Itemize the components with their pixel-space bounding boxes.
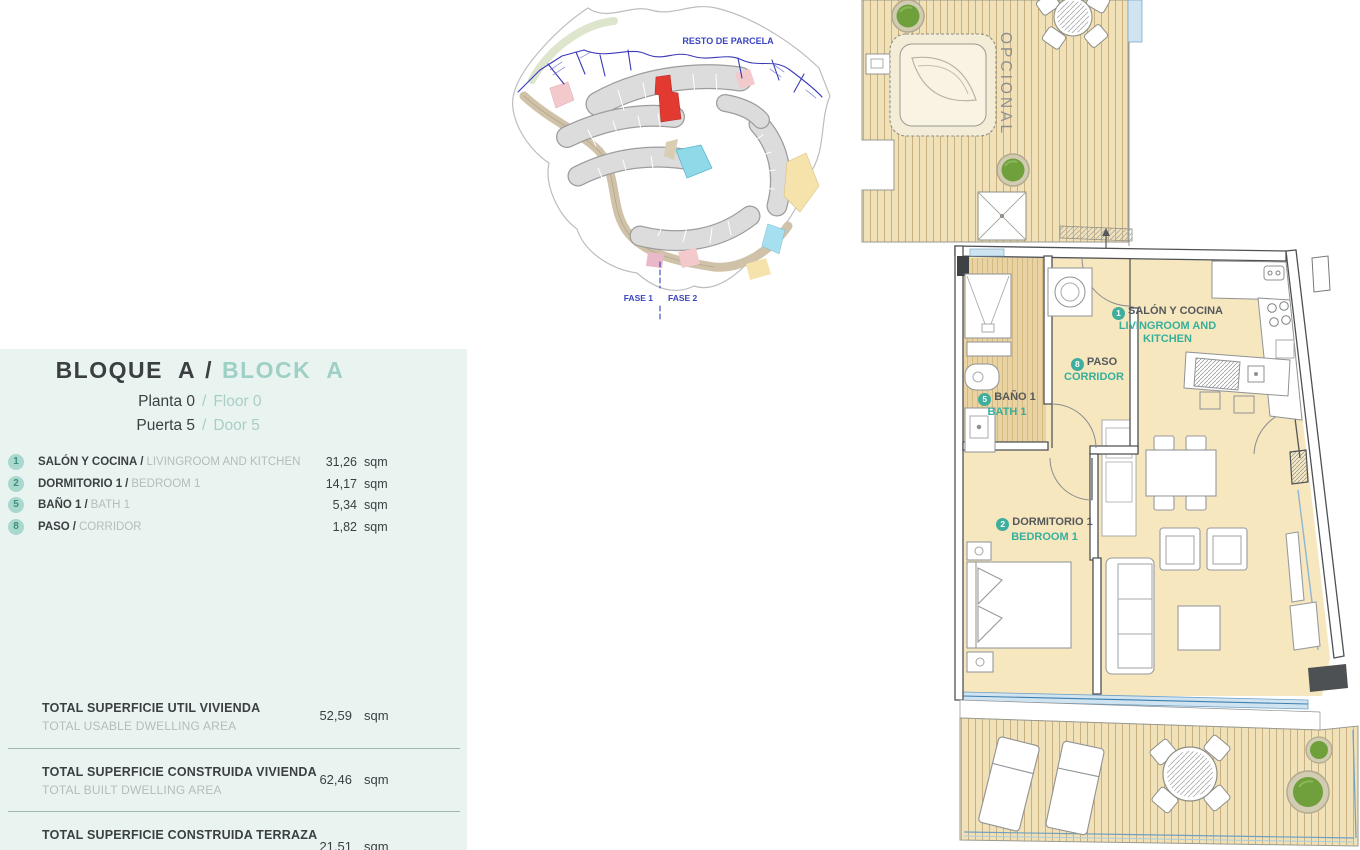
room-area: 5,34 xyxy=(287,498,357,512)
room-label-corridor: 8PASO CORRIDOR xyxy=(1038,356,1150,384)
room-row: 8 PASO/CORRIDOR 1,82 sqm xyxy=(8,518,398,538)
site-label-parcela: RESTO DE PARCELA xyxy=(682,36,774,46)
terrace-glass-panel xyxy=(1128,0,1142,42)
room-name-en: LIVINGROOM AND KITCHEN xyxy=(146,456,300,468)
divider xyxy=(8,748,460,749)
block-title-en: BLOCK A xyxy=(222,357,344,383)
room-number-badge: 2 xyxy=(996,518,1009,531)
total-unit: sqm xyxy=(364,839,389,850)
room-label-living-kitchen: 1SALÓN Y COCINA LIVINGROOM AND KITCHEN xyxy=(1100,305,1235,346)
armchair xyxy=(1160,528,1200,570)
room-number-badge: 2 xyxy=(8,476,24,492)
room-area-unit: sqm xyxy=(364,498,388,512)
entrance-landing xyxy=(1060,226,1132,241)
site-label-fase2: FASE 2 xyxy=(668,293,698,303)
room-name-en: BATH 1 xyxy=(91,499,130,511)
site-plan: RESTO DE PARCELA FASE 1 FASE 2 xyxy=(488,0,838,322)
total-built-row: TOTAL SUPERFICIE CONSTRUIDA VIVIENDA TOT… xyxy=(42,765,442,797)
kitchen-sink xyxy=(1264,266,1284,280)
total-unit: sqm xyxy=(364,708,389,723)
total-value: 52,59 xyxy=(272,708,352,723)
floor-label-en: Floor 0 xyxy=(213,393,261,411)
column xyxy=(957,256,969,276)
room-name-es: PASO xyxy=(38,521,70,533)
block-title-es: BLOQUE A xyxy=(56,357,197,383)
floorplan-sheet: BLOQUE A/BLOCK A Planta 0 / Floor 0 Puer… xyxy=(0,0,1360,850)
room-row: 2 DORMITORIO 1/BEDROOM 1 14,17 sqm xyxy=(8,475,398,495)
room-name-en: CORRIDOR xyxy=(79,521,142,533)
shower xyxy=(965,274,1011,338)
door-row: Puerta 5 / Door 5 xyxy=(0,417,420,435)
room-name-es: DORMITORIO 1 xyxy=(38,478,122,490)
block-title: BLOQUE A/BLOCK A xyxy=(0,357,400,384)
total-terrace-row: TOTAL SUPERFICIE CONSTRUIDA TERRAZA 21,5… xyxy=(42,828,442,846)
room-number-badge: 8 xyxy=(1071,358,1084,371)
bathroom-window xyxy=(970,249,1004,256)
coffee-table xyxy=(1178,606,1220,650)
floor-row: Planta 0 / Floor 0 xyxy=(0,393,420,411)
bed xyxy=(967,562,1071,648)
room-number-badge: 5 xyxy=(978,393,991,406)
optional-label: OPCIONAL xyxy=(996,32,1014,136)
kitchen-peninsula xyxy=(1184,352,1290,396)
toilet xyxy=(965,364,999,390)
planter xyxy=(997,154,1029,186)
room-number-badge: 5 xyxy=(8,497,24,513)
total-unit: sqm xyxy=(364,772,389,787)
armchair xyxy=(1207,528,1247,570)
planter xyxy=(1306,737,1332,763)
sofa xyxy=(1106,558,1154,674)
planter xyxy=(892,0,924,32)
washing-machine xyxy=(1048,268,1092,316)
room-row: 5 BAÑO 1/BATH 1 5,34 sqm xyxy=(8,496,398,516)
shower-bench xyxy=(967,342,1011,356)
room-area-unit: sqm xyxy=(364,520,388,534)
room-row: 1 SALÓN Y COCINA/LIVINGROOM AND KITCHEN … xyxy=(8,453,398,473)
sideboard xyxy=(1290,602,1320,650)
room-name-es: SALÓN Y COCINA xyxy=(38,456,137,468)
separator: / xyxy=(202,417,206,435)
separator: / xyxy=(205,357,213,383)
door-label-en: Door 5 xyxy=(213,417,260,435)
room-area-unit: sqm xyxy=(364,477,388,491)
room-area: 31,26 xyxy=(287,455,357,469)
room-number-badge: 1 xyxy=(8,454,24,470)
room-number-badge: 8 xyxy=(8,519,24,535)
total-value: 62,46 xyxy=(272,772,352,787)
jacuzzi xyxy=(890,34,996,136)
info-panel: BLOQUE A/BLOCK A Planta 0 / Floor 0 Puer… xyxy=(0,349,467,850)
skylight xyxy=(978,192,1026,240)
separator: / xyxy=(202,393,206,411)
site-label-fase1: FASE 1 xyxy=(624,293,654,303)
divider xyxy=(8,811,460,812)
lower-terrace xyxy=(960,700,1358,846)
total-value: 21,51 xyxy=(272,839,352,850)
door-label-es: Puerta 5 xyxy=(0,417,195,435)
room-number-badge: 1 xyxy=(1112,307,1125,320)
room-label-bedroom: 2DORMITORIO 1 BEDROOM 1 xyxy=(972,516,1117,544)
room-area-unit: sqm xyxy=(364,455,388,469)
room-area: 1,82 xyxy=(287,520,357,534)
room-label-bath: 5BAÑO 1 BATH 1 xyxy=(948,391,1066,419)
room-area: 14,17 xyxy=(287,477,357,491)
planter xyxy=(1287,771,1329,813)
room-name-es: BAÑO 1 xyxy=(38,499,81,511)
total-usable-row: TOTAL SUPERFICIE UTIL VIVIENDA TOTAL USA… xyxy=(42,701,442,733)
floor-label-es: Planta 0 xyxy=(0,393,195,411)
room-name-en: BEDROOM 1 xyxy=(131,478,200,490)
floor-plan xyxy=(860,0,1360,850)
column xyxy=(1308,664,1348,692)
